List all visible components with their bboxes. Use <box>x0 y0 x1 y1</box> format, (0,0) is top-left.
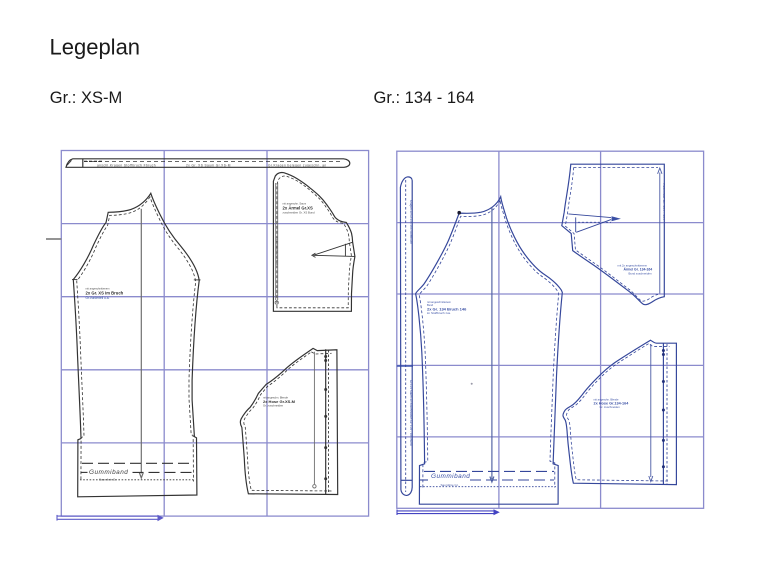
svg-text:Gr.Vorderteil u.a.: Gr.Vorderteil u.a. <box>86 296 110 300</box>
svg-text:Gr. zuschneiden: Gr. zuschneiden <box>263 404 284 408</box>
svg-text:zuschneiden Gr. XS Bund: zuschneiden Gr. XS Bund <box>283 211 315 215</box>
svg-text:Gummiband: Gummiband <box>431 473 470 480</box>
svg-text:anschl.Kragen Stoffbruch Fb: anschl.Kragen Stoffbruch Fbruch <box>97 163 156 167</box>
svg-text:Gr. zuschneiden: Gr. zuschneiden <box>600 405 621 409</box>
svg-text:Gr.134 Saum 2x zuschneiden G: Gr.134 Saum 2x zuschneiden Gr. 134 - 164… <box>409 380 413 446</box>
svg-text:Bund zuschneiden: Bund zuschneiden <box>629 272 652 276</box>
svg-text:2x Gr. XS Saum Gr.XS-M: 2x Gr. XS Saum Gr.XS-M <box>186 163 231 167</box>
svg-text:Saumlinie Gr.: Saumlinie Gr. <box>99 478 117 482</box>
svg-text:Gummiband: Gummiband <box>89 469 128 476</box>
svg-text:2x Gr. XS im Bruch: 2x Gr. XS im Bruch <box>86 291 124 296</box>
svg-text:Gr.: 134 - 164: Gr.: 134 - 164 <box>374 89 475 107</box>
svg-text:Fadenlauf Gr. 134 - 164: Fadenlauf Gr. 134 - 164 <box>662 184 666 221</box>
svg-text:Legeplan: Legeplan <box>50 35 141 60</box>
svg-text:Gr.Kragen belegen zugeschn. a: Gr.Kragen belegen zugeschn. an <box>268 163 327 167</box>
svg-text:im Stoffbruch zus.: im Stoffbruch zus. <box>427 311 451 315</box>
svg-text:Fadenlauf Gr. XS-M: Fadenlauf Gr. XS-M <box>275 237 279 265</box>
svg-text:Kragen 2x Gr.134-164 Stoffbr: Kragen 2x Gr.134-164 Stoffbruch <box>409 200 413 244</box>
svg-text:Gr.: XS-M: Gr.: XS-M <box>50 89 122 107</box>
